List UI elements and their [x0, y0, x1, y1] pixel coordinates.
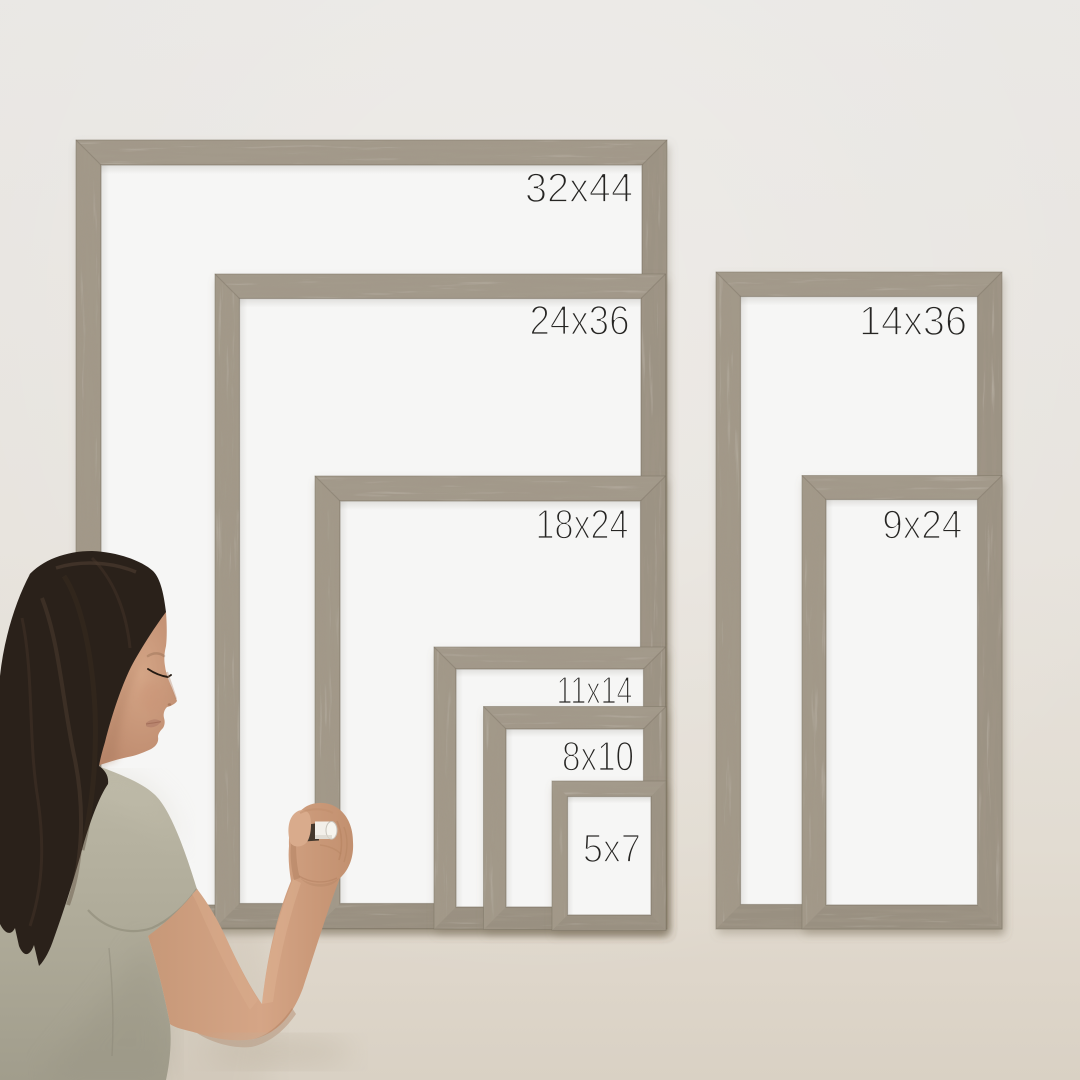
- svg-text:24x36: 24x36: [530, 297, 630, 344]
- svg-text:9x24: 9x24: [882, 502, 962, 548]
- svg-text:32x44: 32x44: [525, 164, 633, 211]
- svg-text:18x24: 18x24: [536, 501, 629, 548]
- svg-text:8x10: 8x10: [562, 733, 634, 780]
- svg-text:5x7: 5x7: [583, 827, 641, 871]
- svg-text:14x36: 14x36: [859, 297, 967, 344]
